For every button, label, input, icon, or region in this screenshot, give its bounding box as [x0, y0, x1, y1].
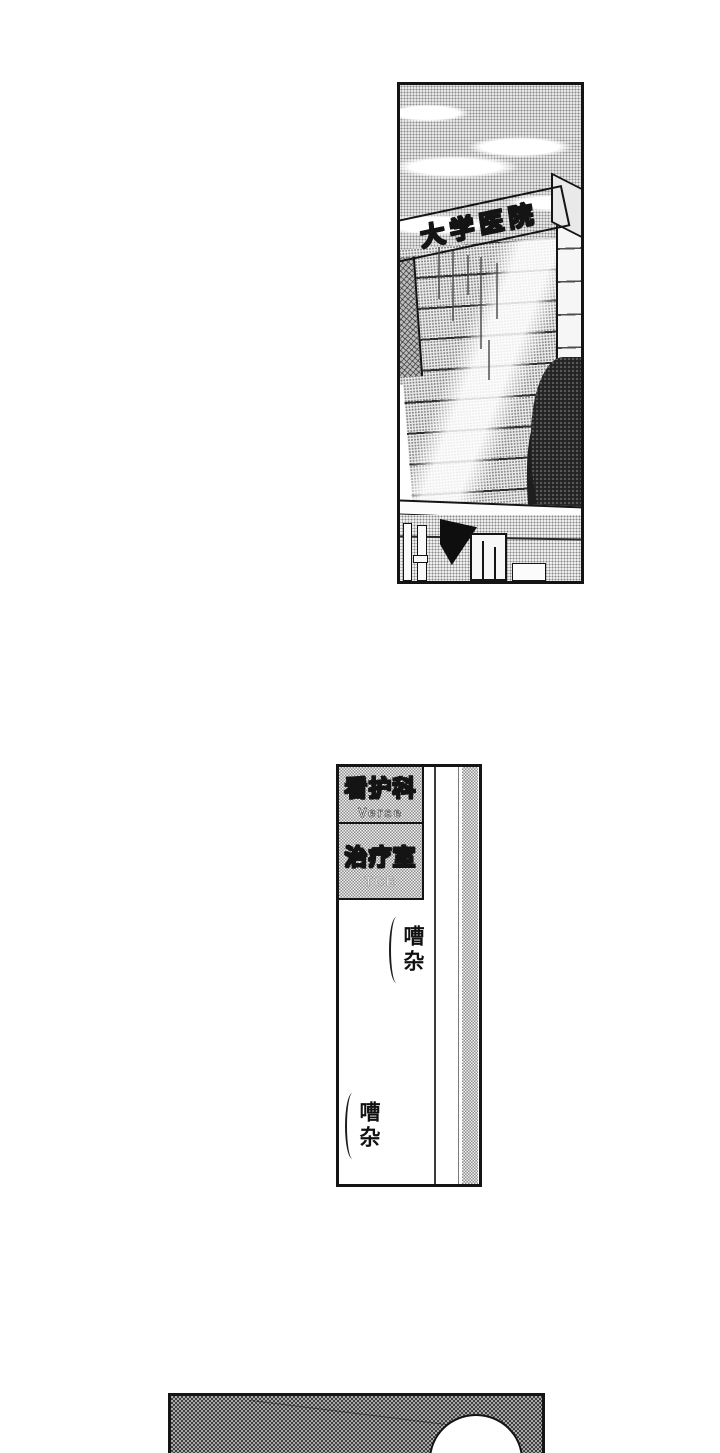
entrance-door	[470, 533, 507, 581]
door-mullion	[494, 547, 496, 579]
panel-hospital-hallway: 看护科 Verse 治疗室 TCE 嘈杂 嘈杂	[336, 764, 482, 1187]
wall-streak	[452, 251, 454, 321]
white-dome-shape	[429, 1414, 523, 1453]
panel-bottom-partial	[168, 1393, 545, 1453]
wall-streak	[467, 255, 469, 295]
sfx-noise-2: 嘈杂	[345, 1093, 400, 1159]
sign-nursing-sub: Verse	[358, 805, 403, 820]
panel-hospital-exterior: 大学医院	[397, 82, 584, 584]
sfx-text: 嘈杂	[402, 925, 423, 975]
entrance-post	[403, 523, 412, 581]
entrance-post	[417, 525, 427, 581]
corridor-wall-line	[458, 767, 459, 1184]
department-signboard: 看护科 Verse 治疗室 TCE	[339, 767, 424, 900]
sign-nursing-label: 看护科	[345, 769, 417, 803]
wall-streak	[496, 263, 498, 319]
sfx-text: 嘈杂	[358, 1101, 379, 1151]
hospital-entrance	[400, 503, 581, 581]
corridor-wall-strip	[462, 767, 479, 1184]
wall-streak	[438, 247, 440, 299]
wall-streak	[488, 340, 490, 380]
entrance-crossbar	[413, 555, 428, 563]
sign-treatment-room: 治疗室 TCE	[339, 824, 422, 898]
background-line	[250, 1400, 464, 1428]
entrance-step	[512, 563, 546, 581]
door-mullion	[482, 541, 484, 579]
sign-treatment-label: 治疗室	[345, 838, 417, 872]
wall-streak	[480, 257, 482, 349]
sign-treatment-sub: TCE	[365, 874, 397, 889]
sfx-noise-1: 嘈杂	[389, 917, 444, 983]
sign-nursing-dept: 看护科 Verse	[339, 767, 422, 824]
